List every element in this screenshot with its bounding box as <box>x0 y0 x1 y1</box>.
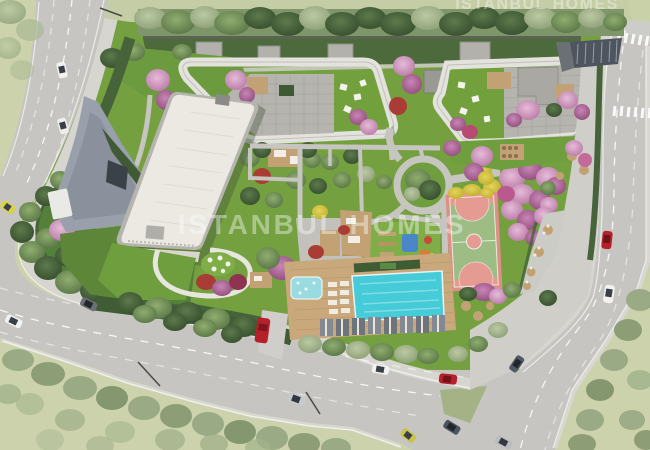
svg-text:ISTANBUL HOMES: ISTANBUL HOMES <box>178 209 467 240</box>
svg-text:ISTANBUL HOMES: ISTANBUL HOMES <box>455 0 619 13</box>
